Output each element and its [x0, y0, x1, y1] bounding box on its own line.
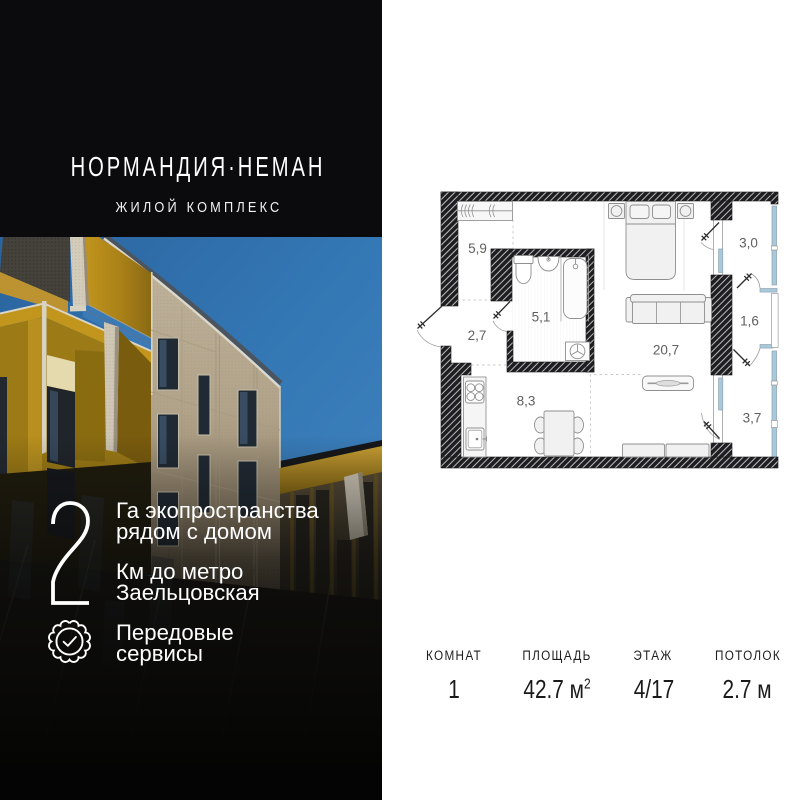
svg-text:8,3: 8,3 [517, 394, 536, 409]
svg-text:1,6: 1,6 [740, 314, 759, 329]
svg-text:2,7: 2,7 [468, 328, 487, 343]
svg-text:3,7: 3,7 [743, 411, 762, 426]
svg-text:5,9: 5,9 [468, 241, 487, 256]
svg-text:5,1: 5,1 [532, 310, 551, 325]
svg-text:20,7: 20,7 [653, 343, 679, 358]
svg-text:3,0: 3,0 [739, 236, 758, 251]
